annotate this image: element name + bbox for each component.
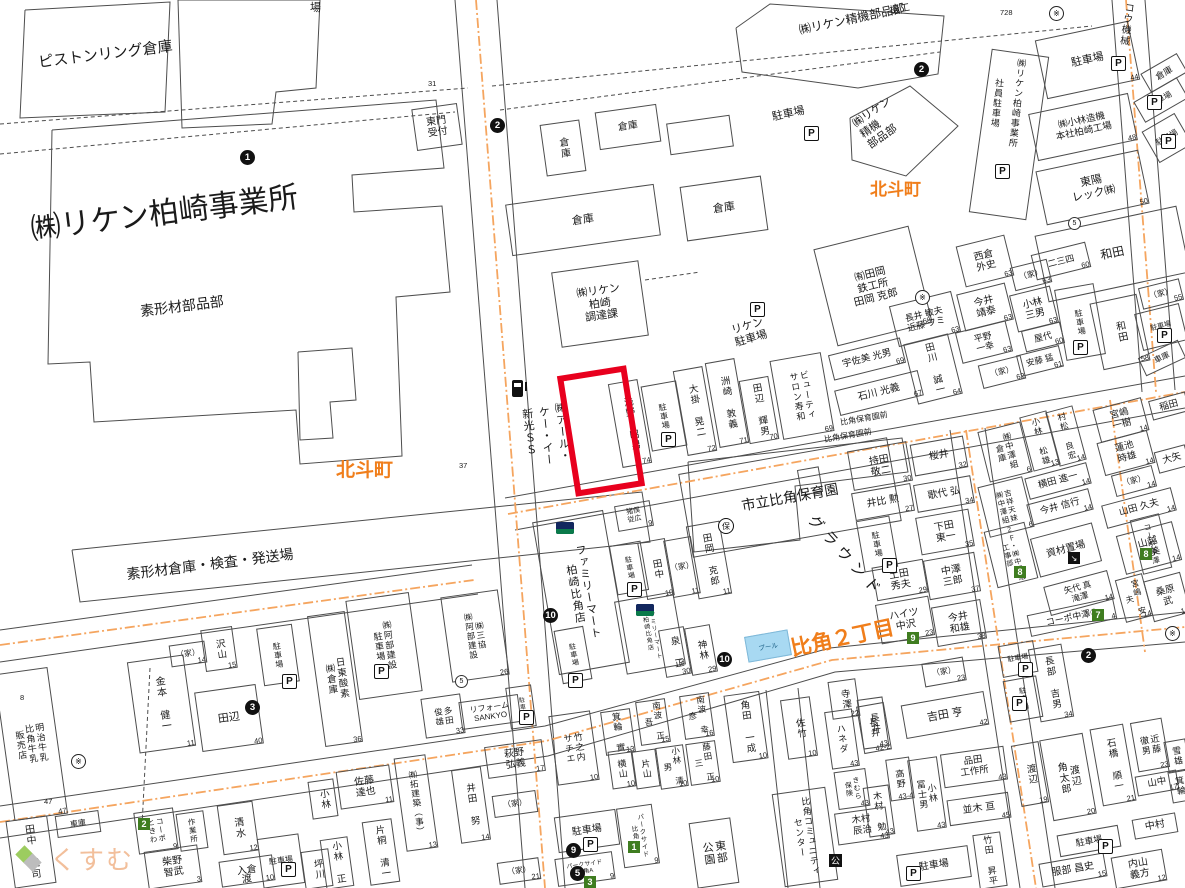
parcel-label: 柴野 智武: [161, 854, 184, 880]
parcel-label: 小林: [316, 788, 330, 810]
lot-number: 14: [481, 832, 490, 841]
parking-icon: P: [1018, 662, 1033, 677]
lot-number: 37: [971, 584, 981, 593]
parcel-label: 田中: [649, 558, 663, 581]
parcel-label: 片桐 清一: [372, 825, 390, 880]
material-yard-icon: ↘: [1068, 552, 1080, 564]
parcel-cell: 沢山15: [200, 626, 238, 672]
parcel-label: 屋代: [1033, 330, 1053, 344]
lot-number: 27: [904, 503, 914, 512]
parcel-label: （家）: [506, 865, 531, 877]
parcel-label: 猪俣 従広: [626, 507, 643, 525]
circled-number-marker: 1: [240, 150, 255, 165]
lot-number: 21: [1126, 793, 1136, 802]
parcel-label: 下田 東一: [933, 519, 957, 545]
parcel-label: 品田 工作所: [958, 754, 989, 780]
parking-icon: P: [519, 710, 534, 725]
parcel-label: 小林 正: [329, 841, 346, 886]
parcel-label: ㈱小林造機 本社柏崎工場: [1053, 110, 1113, 143]
parcel-label: 市立比角保育園: [740, 481, 839, 514]
parcel-label: 歌代 弘: [927, 485, 961, 502]
lot-number: 12: [1157, 873, 1167, 882]
parcel-cell: 小林: [307, 778, 338, 819]
parcel-label: （家）: [1018, 268, 1044, 283]
parcel-label: 今井 和雄: [947, 610, 971, 636]
parcel-label: （家）: [931, 665, 956, 678]
parking-icon: P: [281, 862, 296, 877]
lot-number: 48: [1127, 133, 1137, 142]
map-label: 728: [1000, 8, 1013, 17]
lot-number: 14: [1171, 553, 1181, 562]
parcel-label: 桑原 武: [1155, 584, 1179, 610]
lot-number: 29: [918, 585, 928, 594]
lot-number: 13: [428, 840, 437, 849]
circled-number-marker: 2: [914, 62, 929, 77]
parcel-label: 吉祥天妹 ㈱中澤組: [994, 488, 1019, 525]
lot-number: 4: [1111, 611, 1117, 619]
lot-number: 69: [895, 356, 905, 365]
parcel-label: （家）: [1121, 473, 1147, 488]
lot-number: 38: [977, 631, 987, 640]
parcel-label: 片山: [639, 758, 652, 779]
parcel-label: 和田: [1112, 320, 1128, 344]
lot-number: 43: [937, 820, 946, 829]
parcel-label: 和田: [1099, 245, 1125, 263]
parcel-label: きむら 保険: [842, 776, 861, 802]
lot-number: 43: [998, 772, 1007, 781]
parcel-label: 寺澤: [837, 688, 851, 710]
lot-number: 17: [536, 764, 545, 773]
parcel-label: 神林: [694, 639, 708, 662]
lot-number: 23: [956, 673, 966, 682]
parcel-label: 洲崎 敦義: [717, 375, 737, 430]
parking-icon: P: [1098, 839, 1113, 854]
apartment-number-badge: 9: [907, 632, 919, 644]
parcel-label: 倉庫: [571, 212, 595, 228]
parcel-label: 横山: [615, 758, 628, 779]
parking-icon: P: [1073, 340, 1088, 355]
parcel-label: 田辺 輝男: [749, 382, 769, 437]
parcel-label: 中澤 三郎: [940, 563, 964, 589]
lot-number: 32: [958, 460, 968, 469]
circled-number-marker: 2: [490, 118, 505, 133]
familymart-logo: [556, 522, 574, 534]
parcel-label: 木村 辰治: [851, 814, 873, 838]
lot-number: 74: [642, 456, 652, 465]
parking-icon: P: [804, 126, 819, 141]
parcel-label: 箕輪 實: [610, 711, 626, 753]
parcel-label: 二三四: [1047, 253, 1076, 270]
lot-number: 36: [353, 734, 362, 743]
lot-number: 10: [626, 779, 635, 788]
parcel-label: 清水: [231, 816, 245, 839]
lot-number: 34: [964, 496, 974, 505]
parcel-label: ビューティ サロン寿和: [787, 370, 816, 423]
parcel-label: 石橋 順一: [1103, 737, 1123, 792]
lot-number: 70: [769, 432, 779, 441]
parcel-label: 大矢: [1161, 451, 1182, 466]
lot-number: 10: [808, 748, 817, 757]
parcel-label: 駐車場: [1070, 50, 1105, 69]
lot-number: 43: [850, 758, 859, 767]
parcel-label: 西倉 外史: [973, 247, 998, 274]
lot-number: 14: [1145, 456, 1155, 465]
parcel-cell: 中澤 三郎37: [923, 552, 981, 600]
circled-number-marker: 9: [566, 843, 581, 858]
parcel-label: ハネダ: [835, 723, 849, 754]
parcel-label: 今井 信行: [1039, 496, 1081, 517]
lot-number: 63: [1002, 344, 1012, 353]
parcel-label: 竹田 昇平: [981, 835, 998, 887]
lot-number: 50: [1139, 196, 1149, 205]
parcel-cell: 小林 清男10: [655, 744, 689, 789]
parcel-label: 資材置場: [1045, 539, 1087, 560]
lot-number: 63: [1041, 275, 1051, 284]
circled-number-marker: 10: [717, 652, 732, 667]
parcel-label: 東門 受付: [425, 114, 448, 140]
landmark-circle-icon: ※: [915, 290, 930, 305]
lot-number: 64: [952, 386, 962, 395]
map-label: 渡: [241, 873, 253, 886]
lot-number: 35: [964, 539, 974, 548]
landmark-circle-icon: ※: [1165, 626, 1180, 641]
parcel-label: 渡辺 角太郎: [1054, 759, 1082, 795]
lot-number: 15: [1097, 869, 1107, 878]
parcel-label: 駐車場: [657, 402, 671, 430]
lot-number: 23: [925, 628, 935, 637]
parking-icon: P: [568, 673, 583, 688]
lot-number: 19: [1039, 795, 1049, 804]
parcel-label: （家）: [502, 798, 527, 810]
parcel-label: 駐車場: [918, 858, 949, 874]
lot-number: 12: [249, 843, 258, 852]
parcel-label: 明治牛乳 比角牛乳 販売店: [13, 722, 49, 766]
apartment-number-badge: 3: [584, 876, 596, 888]
parcel-cell: 木村 辰治43: [834, 807, 890, 846]
lot-number: 16: [705, 728, 714, 737]
parcel-label: 中村: [1144, 819, 1166, 834]
parcel-label: 平野 一幸: [973, 330, 995, 354]
parcel-label: 桜井: [928, 449, 950, 464]
lot-number: 14: [1180, 605, 1185, 614]
lot-number: 63: [950, 325, 960, 334]
parcel-label: 山田 久夫: [1118, 497, 1160, 518]
town-name-label: 北斗町: [336, 460, 393, 483]
watermark-logo-icon: [18, 846, 44, 872]
parcel-label: 倉庫: [617, 120, 638, 134]
watermark-text: くすむ: [50, 840, 134, 877]
familymart-logo: [636, 604, 654, 616]
parcel-label: 大掛 晃二: [685, 383, 705, 438]
lot-number: 10: [678, 779, 687, 788]
parcel-label: 田川 誠一: [921, 341, 945, 396]
parcel-label: 車庫: [1153, 350, 1171, 365]
parcel-label: 吉田 亨: [926, 706, 964, 725]
parcel-cell: 寺澤22: [827, 678, 860, 720]
parcel-label: 小林 冨士男: [915, 778, 940, 811]
parcel-label: ㈱中澤組 倉庫: [991, 431, 1019, 473]
small-circled-number: 5: [1068, 217, 1081, 230]
map-label: 31: [428, 79, 436, 88]
lot-number: 67: [913, 388, 923, 397]
parking-icon: P: [1161, 134, 1176, 149]
map-label: 37: [459, 461, 467, 470]
parcel-label: 多田 俊雄: [431, 696, 456, 736]
parcel-label: 東陽 レック㈱: [1068, 171, 1116, 205]
parcel-label: 宇佐美 光男: [841, 348, 892, 371]
parcel-label: 服部 昌史: [1051, 861, 1095, 880]
lot-number: 60: [1080, 260, 1090, 269]
parcel-cell: ㈱リケン 柏崎 調達課: [551, 260, 649, 348]
parcel-cell: 藤田 正三10: [685, 740, 721, 786]
parking-icon: P: [882, 558, 897, 573]
lot-number: 72: [707, 444, 717, 453]
lot-number: 45: [1001, 810, 1010, 819]
parcel-label: 日東酸素 ㈱倉庫: [321, 657, 348, 702]
apartment-number-badge: 2: [138, 818, 150, 830]
parcel-label: 高野: [893, 768, 906, 789]
parcel-label: 駐車場: [567, 642, 579, 667]
parcel-label: 比角コミュニティ センター: [789, 796, 821, 878]
parcel-label: ㈱三協 ㈱阿部建設: [462, 611, 488, 661]
parcel-label: 佐竹: [792, 717, 806, 739]
parcel-cell: 柴野 智武3: [144, 844, 203, 888]
parcel-label: リフォーム SANKYO: [469, 700, 511, 724]
residential-map-canvas: くすむ 東門 受付倉庫倉庫倉庫倉庫㈱リケン 柏崎 調達課駐車場44㈱小林造機 本…: [0, 0, 1185, 888]
parcel-label: 安藤 猛: [1025, 353, 1054, 369]
parking-icon: P: [906, 866, 921, 881]
lot-number: 20: [1086, 806, 1096, 815]
parcel-label: 沢山: [212, 638, 226, 660]
lot-number: 14: [1081, 476, 1091, 485]
apartment-number-badge: 7: [1092, 609, 1104, 621]
lot-number: 55: [1173, 293, 1183, 302]
parcel-cell: 今井 和雄38: [931, 599, 987, 647]
parcel-label: 長部 吉男: [1041, 655, 1061, 710]
parcel-label: 稲田: [1158, 398, 1179, 413]
parcel-label: ㈱リケン 柏崎 調達課: [576, 282, 625, 326]
parcel-label: 車庫: [69, 818, 86, 829]
circled-number-marker: 10: [543, 608, 558, 623]
lot-number: 71: [739, 436, 749, 445]
parcel-label: 村松 良宏: [1055, 411, 1077, 461]
parcel-label: 倉庫: [712, 201, 736, 217]
parcel-label: 作業所: [186, 818, 198, 844]
lot-number: 11: [186, 738, 195, 747]
parcel-cell: 田辺40: [194, 684, 264, 752]
lot-number: 14: [1166, 503, 1176, 512]
map-watermark: くすむ: [18, 840, 134, 877]
parcel-label: 宮嶋 一樹: [1109, 407, 1133, 433]
parcel-cell: 清水12: [217, 801, 260, 856]
parcel-cell: 倉庫: [680, 176, 769, 242]
parcel-cell: ㈱三協 ㈱阿部建設26: [440, 589, 509, 682]
apartment-number-badge: 1: [628, 841, 640, 853]
parcel-label: （家）: [989, 365, 1015, 380]
parcel-label: ㈲拓建築（事）: [407, 769, 426, 836]
lot-number: 30: [681, 666, 691, 675]
small-circled-number: 5: [455, 675, 468, 688]
lot-number: 40: [254, 736, 263, 745]
lot-number: 9: [654, 856, 659, 864]
parcel-label: 井田 努: [463, 783, 480, 828]
parking-icon: P: [1157, 328, 1172, 343]
parcel-label: 渡辺: [1023, 763, 1037, 786]
apartment-number-badge: 8: [1014, 566, 1026, 578]
parking-icon: P: [1111, 56, 1126, 71]
lot-number: 6: [1026, 465, 1032, 473]
lot-number: 11: [722, 586, 731, 595]
lot-number: 9: [648, 518, 653, 526]
circled-number-marker: 3: [245, 700, 260, 715]
parcel-cell: 南波 正吾15: [635, 698, 671, 746]
parcel-cell: 東部 公園: [689, 817, 740, 888]
parcel-cell: 佐藤 達也11: [336, 764, 395, 809]
lot-number: 26: [499, 667, 508, 676]
lot-number: 69: [824, 424, 834, 433]
parcel-label: 並木 亘: [962, 801, 996, 817]
parking-icon: P: [627, 582, 642, 597]
lot-number: 43: [879, 739, 888, 748]
parcel-label: 田辺: [217, 710, 241, 726]
lot-number: 21: [531, 872, 540, 881]
lot-number: 14: [1146, 479, 1156, 488]
lot-number: 15: [661, 734, 670, 743]
parcel-label: 佐藤 達也: [353, 774, 376, 800]
lot-number: 15: [227, 660, 236, 669]
parcel-label: ㈲田岡 鉄工所 田岡 克郎: [847, 263, 899, 309]
lot-number: 60: [1054, 336, 1064, 345]
parcel-label: 萩野 弘義: [503, 746, 526, 772]
parcel-label: 駐車場: [272, 641, 285, 669]
parcel-label: 長井: [866, 712, 880, 734]
parcel-label: 東部 公園: [700, 839, 728, 866]
parcel-label: 駐車場: [623, 555, 635, 580]
parking-icon: P: [750, 302, 765, 317]
parcel-label: 泉 正: [667, 635, 683, 669]
parcel-label: 近藤 徹男: [1138, 733, 1162, 756]
lot-number: 10: [710, 774, 719, 783]
parcel-cell: 東門 受付: [411, 103, 462, 151]
lot-number: 62: [1015, 371, 1025, 380]
lot-number: 10: [589, 772, 598, 781]
circled-number-marker: 2: [1081, 648, 1096, 663]
parcel-label: 石川 光義: [857, 382, 901, 404]
parcel-label: （家）: [669, 560, 694, 573]
lot-number: 22: [850, 709, 859, 718]
parcel-cell: 倉庫: [540, 119, 587, 176]
parcel-label: （家）: [1148, 287, 1174, 302]
lot-number: 9: [610, 872, 615, 880]
lot-number: 42: [979, 717, 989, 726]
parcel-label: 駐車場: [1073, 308, 1087, 336]
lot-number: 61: [1053, 359, 1063, 368]
parcel-label: 長井 敏夫 近藤 フミ: [904, 304, 946, 333]
lot-number: 14: [1076, 452, 1086, 461]
parking-icon: P: [1012, 696, 1027, 711]
lot-number: 29: [707, 664, 717, 673]
gas-station-icon: [512, 380, 523, 397]
lot-number: 44: [1130, 72, 1140, 81]
parcel-label: 雪雄: [1170, 745, 1184, 766]
lot-number: 3: [196, 875, 201, 883]
parcel-label: 倉庫: [556, 136, 570, 159]
parcel-label: 角田 一成: [737, 700, 755, 755]
parcel-label: 横田 進一: [1037, 470, 1079, 491]
parcel-label: 金本 健一: [152, 675, 171, 732]
map-label: 場: [310, 2, 321, 15]
parking-icon: P: [1147, 95, 1162, 110]
landmark-circle-icon: ※: [1049, 6, 1064, 21]
parking-icon: P: [583, 837, 598, 852]
parcel-label: 竹之内 サチエ: [562, 732, 587, 765]
parcel-label: 今井 靖泰: [973, 293, 998, 320]
nursery-school-icon: 保: [718, 518, 734, 534]
parcel-cell: 多田 俊雄33: [420, 693, 465, 738]
parking-icon: P: [374, 664, 389, 679]
parcel-label: 内山 義方: [1127, 856, 1151, 882]
apartment-number-badge: 8: [1140, 548, 1152, 560]
lot-number: 10: [758, 751, 767, 760]
map-label: 8: [20, 693, 24, 702]
public-facility-icon: 公: [829, 854, 842, 867]
circled-number-marker: 5: [570, 866, 585, 881]
landmark-circle-icon: ※: [71, 754, 86, 769]
parcel-label: 駐車場: [870, 530, 884, 558]
lot-number: 11: [385, 795, 394, 804]
parcel-label: 小林 三男: [1022, 295, 1047, 322]
lot-number: 43: [880, 831, 889, 840]
parcel-label: 山中: [1147, 776, 1168, 790]
parking-icon: P: [661, 432, 676, 447]
parking-icon: P: [282, 674, 297, 689]
map-label: 47: [44, 797, 52, 806]
lot-number: 30: [903, 473, 913, 482]
parcel-cell: ㈱阿部建設 駐車場: [345, 592, 422, 700]
lot-number: 14: [1083, 502, 1093, 511]
lot-number: 10: [265, 873, 274, 882]
parcel-cell: 南波 幸彦16: [679, 692, 715, 740]
parcel-label: 蓮池 時雄: [1114, 440, 1138, 466]
parcel-label: 箕輪: [1173, 775, 1185, 796]
town-name-label: 北斗町: [870, 180, 921, 200]
lot-number: 34: [1064, 709, 1074, 718]
parking-icon: P: [995, 164, 1010, 179]
